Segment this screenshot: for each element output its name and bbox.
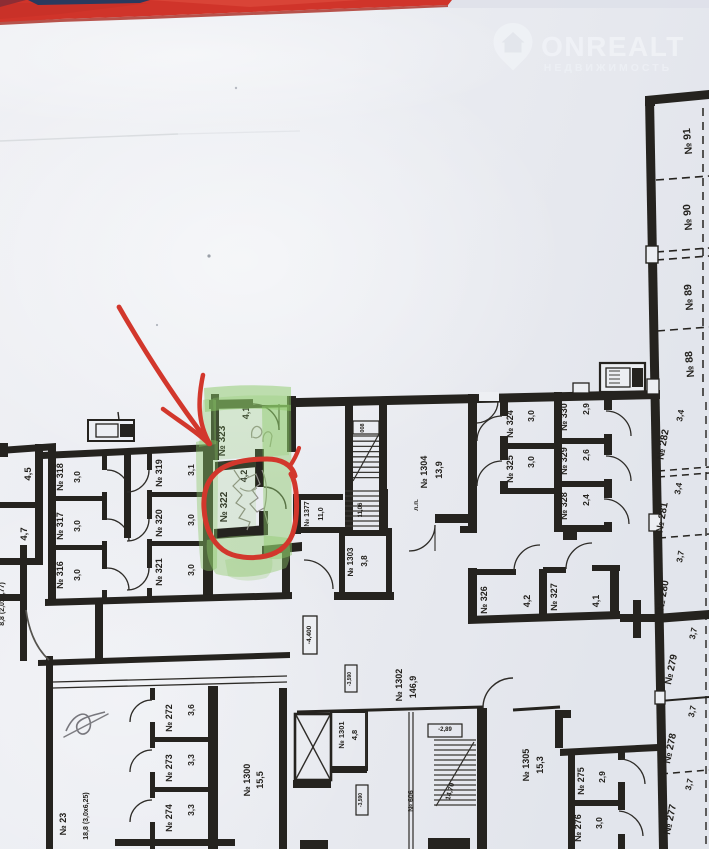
svg-text:146,9: 146,9 — [408, 676, 418, 699]
svg-text:3,4: 3,4 — [672, 482, 684, 496]
svg-text:№ 329: № 329 — [559, 447, 569, 475]
svg-text:№ 272: № 272 — [164, 704, 174, 732]
svg-text:13,9: 13,9 — [434, 461, 444, 479]
svg-text:№ 23: № 23 — [58, 813, 68, 836]
svg-text:№ 327: № 327 — [549, 583, 559, 611]
svg-text:№ 273: № 273 — [164, 754, 174, 782]
svg-text:3,4: 3,4 — [674, 409, 686, 423]
svg-text:2,6: 2,6 — [581, 449, 591, 461]
svg-text:№ 320: № 320 — [154, 509, 164, 537]
svg-text:№ 275: № 275 — [576, 767, 586, 795]
svg-text:ONREALT: ONREALT — [541, 31, 685, 62]
svg-text:3,3: 3,3 — [186, 754, 196, 766]
svg-text:-4,400: -4,400 — [306, 625, 313, 644]
svg-text:8,8 (2,0х5,77): 8,8 (2,0х5,77) — [0, 582, 6, 626]
svg-text:3,0: 3,0 — [72, 471, 82, 483]
svg-text:3,6: 3,6 — [186, 704, 196, 716]
svg-text:№ 318: № 318 — [55, 463, 65, 491]
svg-text:4,7: 4,7 — [19, 527, 30, 540]
svg-text:3,1: 3,1 — [186, 464, 196, 476]
svg-text:№ 88: № 88 — [683, 350, 697, 377]
svg-text:№ 316: № 316 — [55, 561, 65, 589]
svg-text:№ 324: № 324 — [505, 410, 515, 438]
svg-text:3,0: 3,0 — [72, 520, 82, 532]
svg-text:3,3: 3,3 — [186, 804, 196, 816]
svg-text:3,0: 3,0 — [594, 817, 604, 829]
svg-text:№ 89: № 89 — [682, 283, 696, 310]
svg-text:№ 321: № 321 — [154, 558, 164, 586]
svg-text:№ 1302: № 1302 — [394, 669, 404, 702]
svg-text:№ 276: № 276 — [573, 814, 583, 842]
svg-text:4,8: 4,8 — [350, 730, 359, 740]
svg-text:2,9: 2,9 — [597, 771, 607, 783]
svg-text:№ 606: № 606 — [407, 790, 415, 812]
svg-text:4,1: 4,1 — [591, 595, 601, 608]
svg-text:3,0: 3,0 — [526, 410, 536, 422]
svg-text:-3,590: -3,590 — [358, 793, 364, 807]
svg-text:№ 91: № 91 — [681, 127, 695, 154]
svg-text:-3,590: -3,590 — [347, 672, 353, 686]
svg-text:11,06: 11,06 — [358, 502, 364, 517]
svg-text:№ 319: № 319 — [154, 459, 164, 487]
svg-text:3,0: 3,0 — [72, 569, 82, 581]
svg-text:№ 1304: № 1304 — [419, 456, 429, 489]
svg-text:4,2: 4,2 — [522, 595, 532, 608]
svg-text:2,9: 2,9 — [581, 403, 591, 415]
svg-text:2,4: 2,4 — [581, 494, 591, 506]
svg-text:№ 330: № 330 — [559, 403, 569, 431]
svg-text:4,5: 4,5 — [23, 467, 34, 481]
svg-text:3,0: 3,0 — [186, 514, 196, 526]
svg-text:№ 1305: № 1305 — [521, 749, 531, 782]
svg-text:11,0: 11,0 — [318, 507, 325, 520]
svg-text:3,8: 3,8 — [360, 555, 369, 567]
svg-text:№ 1300: № 1300 — [242, 764, 252, 797]
svg-text:№ 326: № 326 — [479, 586, 489, 614]
svg-text:№ 325: № 325 — [505, 455, 515, 483]
svg-text:008: 008 — [360, 423, 366, 432]
svg-text:15,5: 15,5 — [255, 771, 265, 789]
svg-text:№ 1301: № 1301 — [337, 721, 346, 748]
svg-text:3,7: 3,7 — [674, 550, 686, 564]
svg-text:3,0: 3,0 — [186, 564, 196, 576]
svg-text:3,0: 3,0 — [526, 456, 536, 468]
svg-text:№ 328: № 328 — [559, 492, 569, 520]
svg-text:-2,89: -2,89 — [438, 727, 452, 733]
svg-text:№ 1303: № 1303 — [346, 547, 355, 576]
svg-text:№ 1377: № 1377 — [303, 501, 311, 526]
svg-text:НЕДВИЖИМОСТЬ: НЕДВИЖИМОСТЬ — [544, 62, 672, 74]
svg-text:18,8 (3,0х6,25): 18,8 (3,0х6,25) — [83, 792, 90, 839]
svg-text:№ 90: № 90 — [681, 203, 695, 230]
svg-text:л.п.: л.п. — [413, 499, 420, 511]
svg-text:№ 274: № 274 — [164, 804, 174, 832]
svg-text:15,3: 15,3 — [535, 756, 545, 774]
svg-text:№ 317: № 317 — [55, 512, 65, 540]
